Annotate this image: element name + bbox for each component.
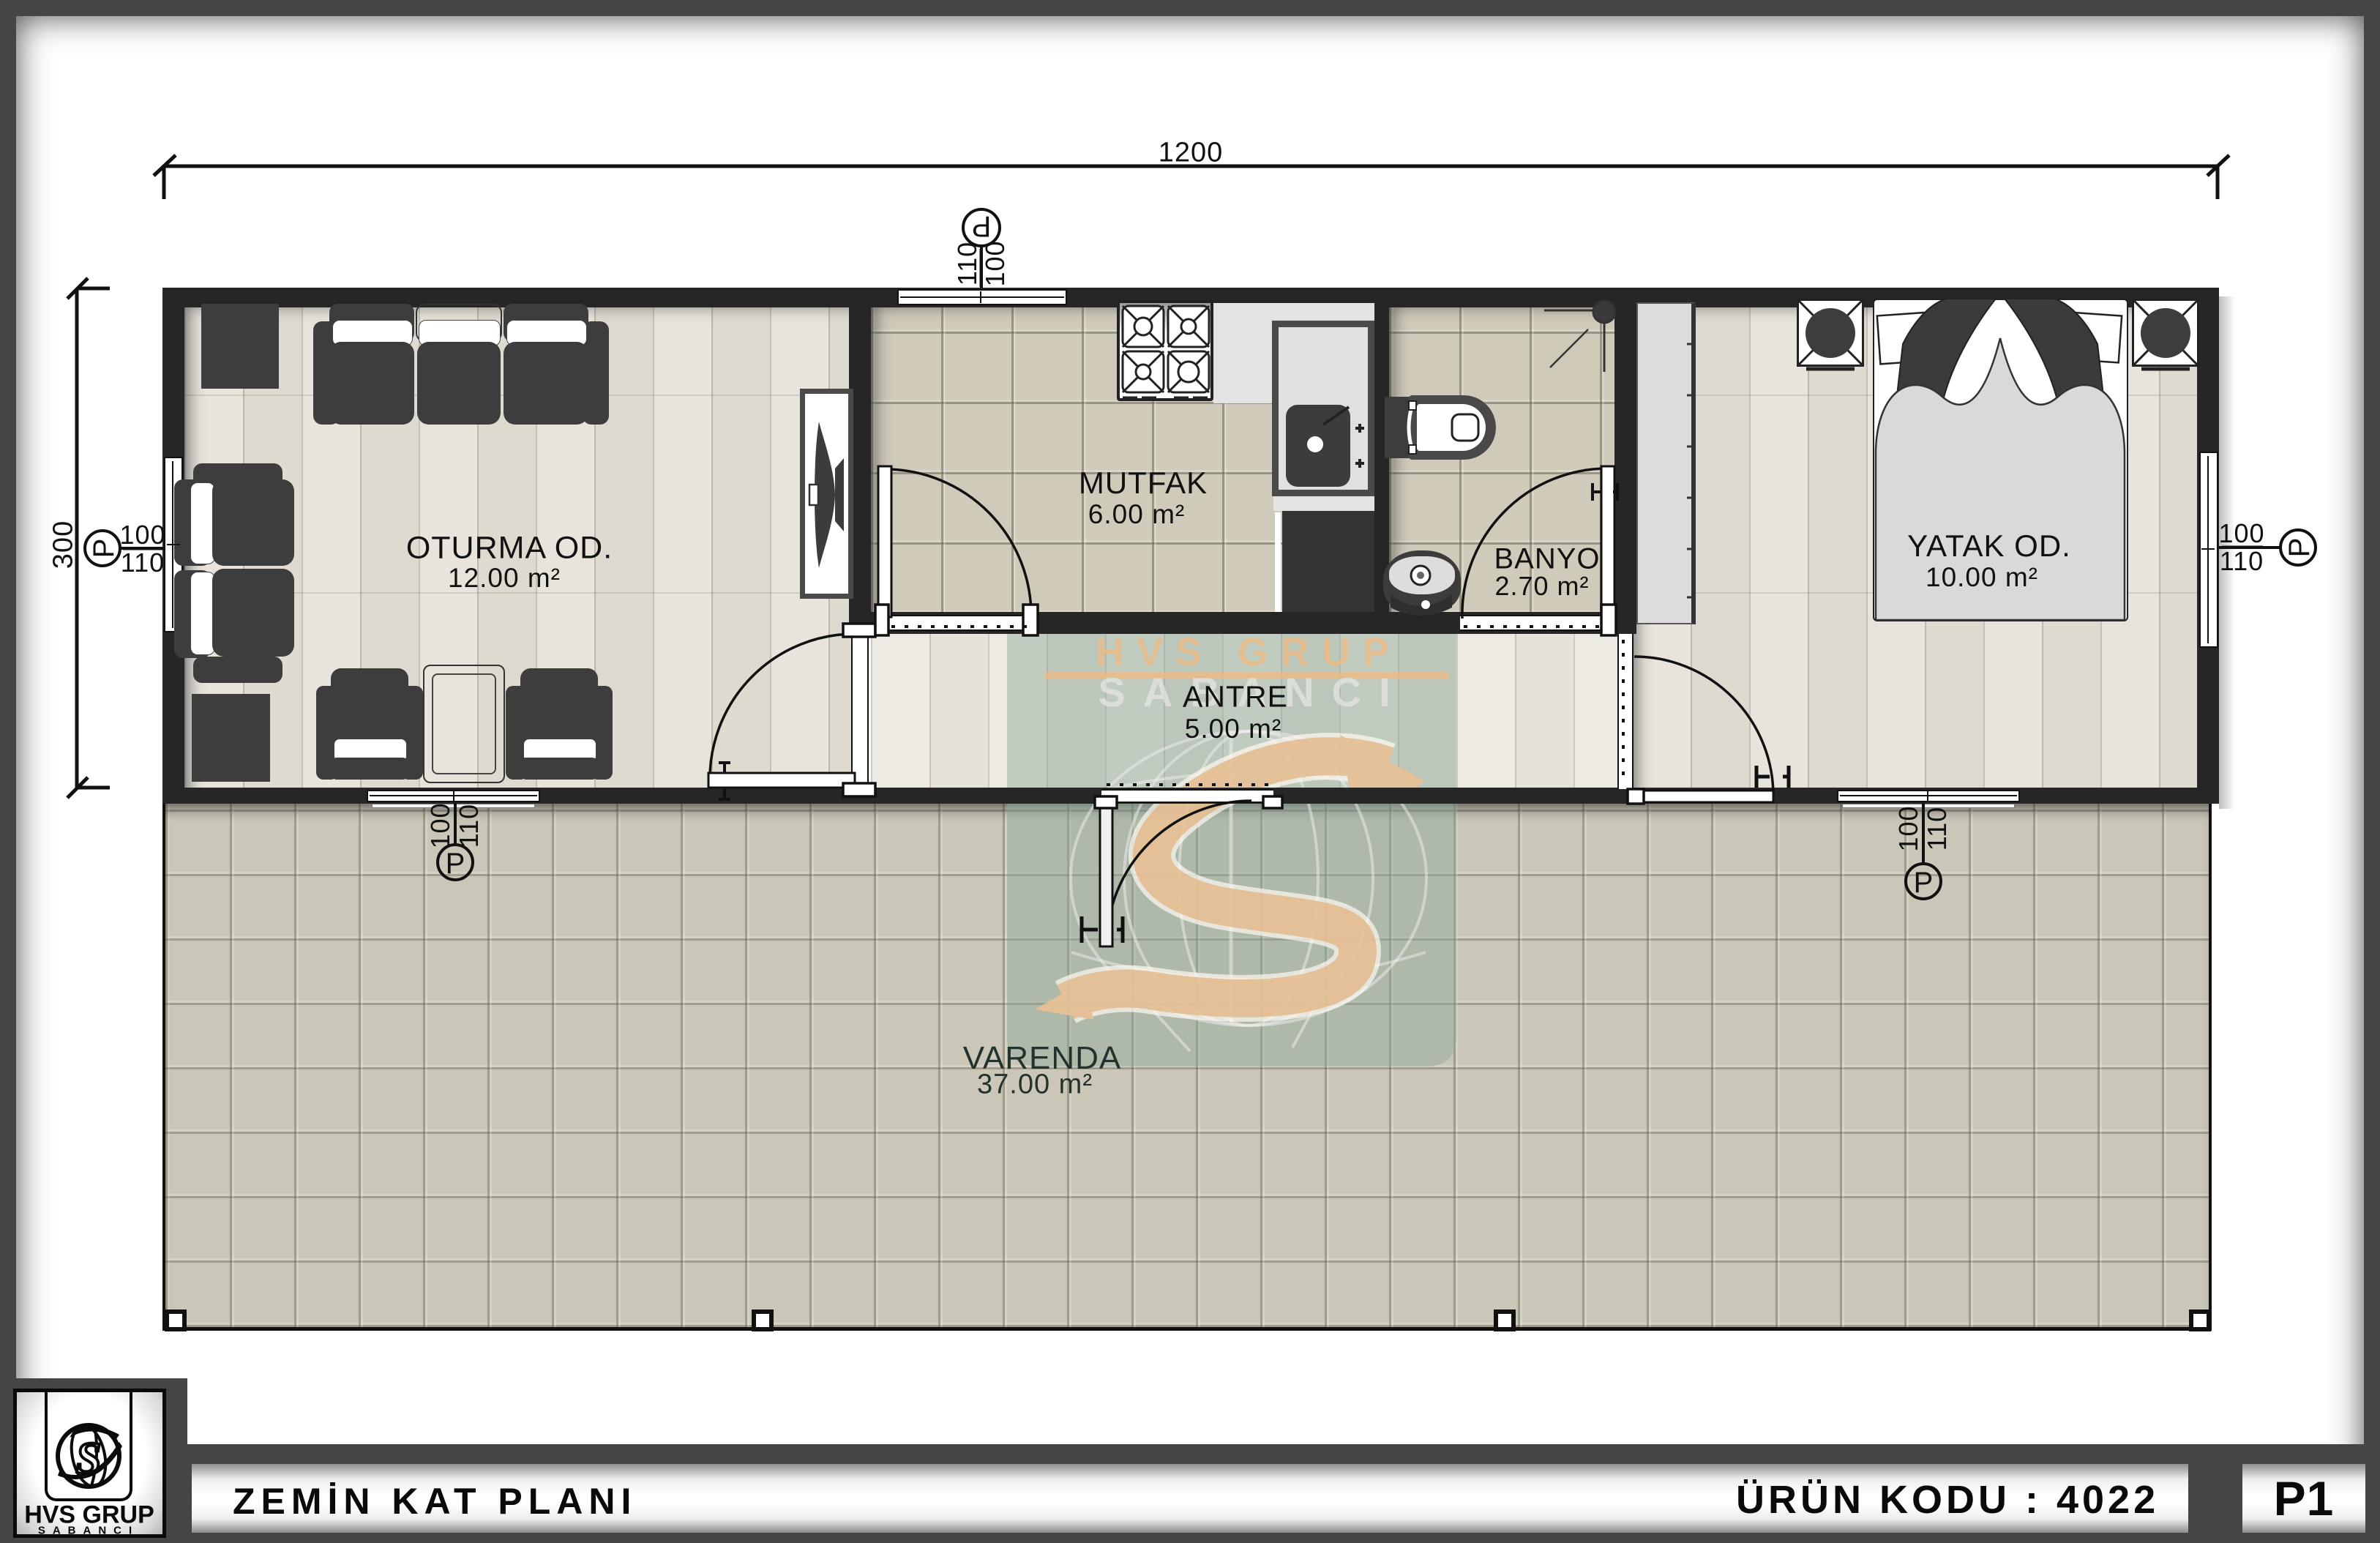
svg-text:P: P [2283, 538, 2316, 558]
svg-text:P: P [446, 848, 465, 880]
svg-text:P: P [1914, 867, 1934, 899]
svg-text:P: P [972, 210, 992, 242]
svg-text:P: P [88, 539, 120, 558]
